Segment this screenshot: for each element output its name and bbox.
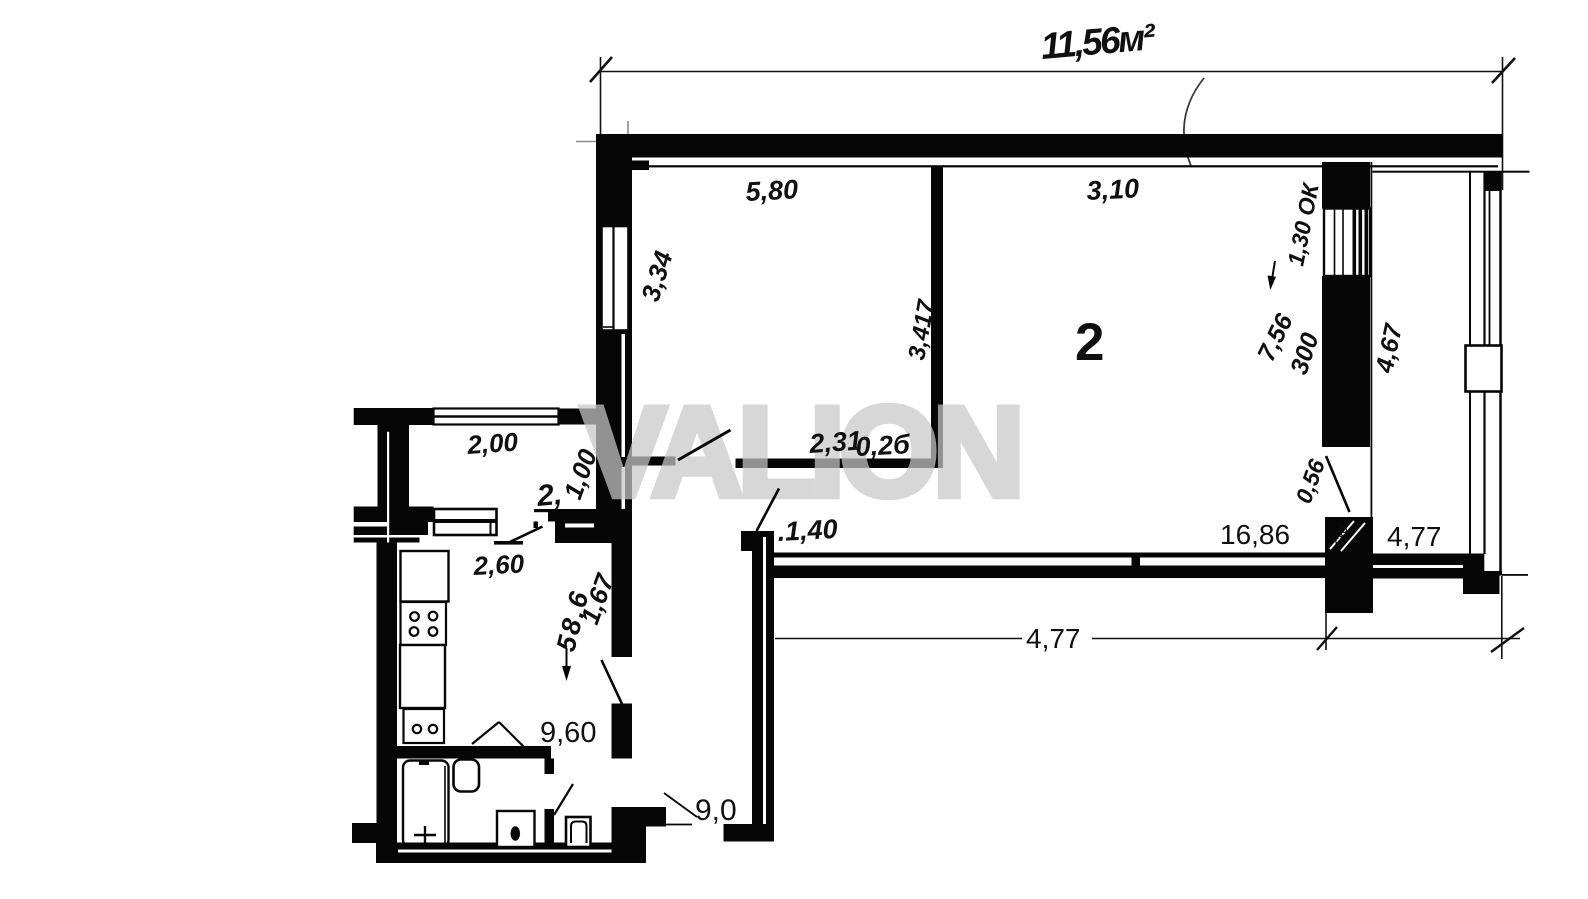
svg-text:9,60: 9,60 bbox=[540, 717, 596, 749]
svg-text:3,34: 3,34 bbox=[635, 247, 679, 305]
svg-text:4,67: 4,67 bbox=[1370, 321, 1408, 376]
svg-text:2,: 2, bbox=[535, 478, 564, 513]
svg-text:0,56: 0,56 bbox=[1290, 456, 1330, 507]
svg-text:2,60: 2,60 bbox=[472, 548, 526, 581]
svg-text:3,10: 3,10 bbox=[1086, 173, 1140, 206]
svg-text:4,77: 4,77 bbox=[1387, 521, 1442, 552]
svg-text:16,86: 16,86 bbox=[1220, 519, 1290, 550]
svg-text:1,30 ОК: 1,30 ОК bbox=[1282, 180, 1324, 268]
svg-text:4,77: 4,77 bbox=[1026, 623, 1081, 654]
svg-text:VALION: VALION bbox=[581, 381, 1019, 524]
svg-text:9,0: 9,0 bbox=[695, 794, 737, 827]
svg-text:0,2б: 0,2б bbox=[855, 429, 912, 462]
svg-text:5,80: 5,80 bbox=[745, 174, 799, 207]
svg-text:2: 2 bbox=[1075, 313, 1104, 372]
svg-text:11,56м²: 11,56м² bbox=[1039, 16, 1158, 67]
svg-text:2,00: 2,00 bbox=[465, 426, 519, 460]
svg-text:.1,40: .1,40 bbox=[777, 514, 839, 547]
